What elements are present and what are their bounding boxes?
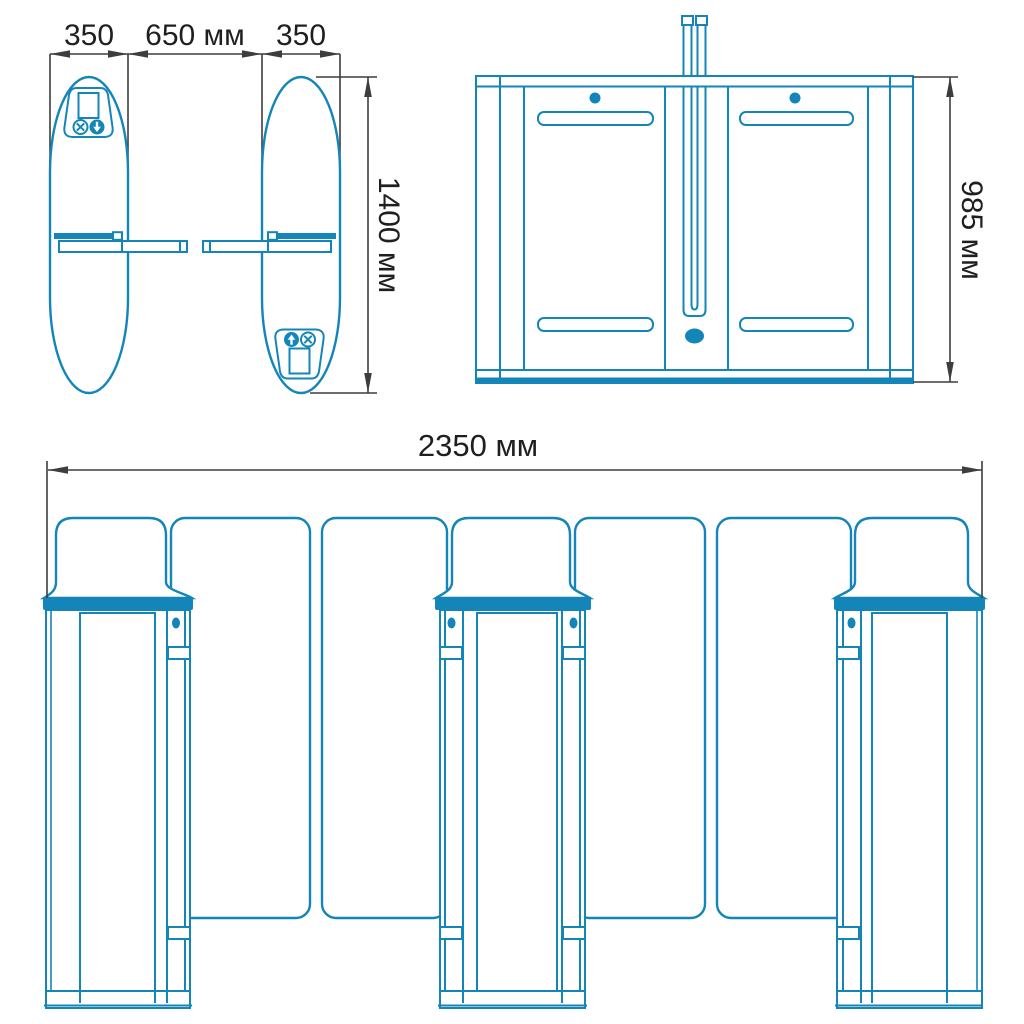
side-view: 985 мм	[476, 16, 988, 383]
front-center-pedestal	[438, 610, 587, 1008]
dim-label-total-width: 2350 мм	[418, 428, 538, 463]
sensor-dot	[172, 618, 180, 629]
side-slot	[563, 647, 585, 659]
dim-label-housing-height: 985 мм	[955, 180, 988, 280]
plan-right-wing	[203, 232, 336, 252]
side-slot	[168, 927, 190, 939]
plan-view: 350 650 мм 350	[50, 19, 405, 393]
side-slot	[837, 647, 859, 659]
front-left-pedestal	[44, 610, 192, 1008]
glass-wing	[171, 518, 310, 918]
dim-label-pedestal-length: 1400 мм	[372, 177, 405, 293]
lock-dot	[685, 329, 704, 344]
dim-label-passage-width: 650 мм	[145, 19, 245, 52]
side-slot	[563, 927, 585, 939]
side-slot	[440, 927, 462, 939]
entry-arrow-icon	[90, 120, 105, 135]
vent-slot	[538, 318, 653, 331]
wing-tip-cap	[180, 241, 187, 252]
dim-label-pedestal-width-right: 350	[276, 19, 326, 52]
front-pedestal-lids	[43, 597, 985, 610]
glass-wing	[575, 518, 705, 918]
wing-tip-cap	[203, 241, 210, 252]
entry-arrow-icon	[284, 332, 299, 347]
screw-dot	[590, 93, 601, 104]
side-slot	[440, 647, 462, 659]
front-right-pedestal	[835, 610, 983, 1008]
vent-slot	[538, 112, 653, 125]
side-height-dimension: 985 мм	[913, 77, 988, 382]
glass-wing	[717, 518, 851, 918]
front-view: 2350 мм	[43, 428, 985, 1008]
turnstile-drawing: 350 650 мм 350	[0, 0, 1024, 1024]
vent-slot	[740, 318, 853, 331]
side-slot	[168, 647, 190, 659]
vent-slot	[740, 112, 853, 125]
dim-label-pedestal-width-left: 350	[64, 19, 114, 52]
plan-left-wing	[54, 232, 187, 252]
sensor-dot	[570, 618, 578, 629]
sensor-dot	[448, 618, 456, 629]
glass-wing	[322, 518, 447, 918]
technical-drawing-canvas: 350 650 мм 350	[0, 0, 1024, 1024]
side-slot	[837, 927, 859, 939]
screw-dot	[790, 93, 801, 104]
sensor-dot	[848, 618, 856, 629]
